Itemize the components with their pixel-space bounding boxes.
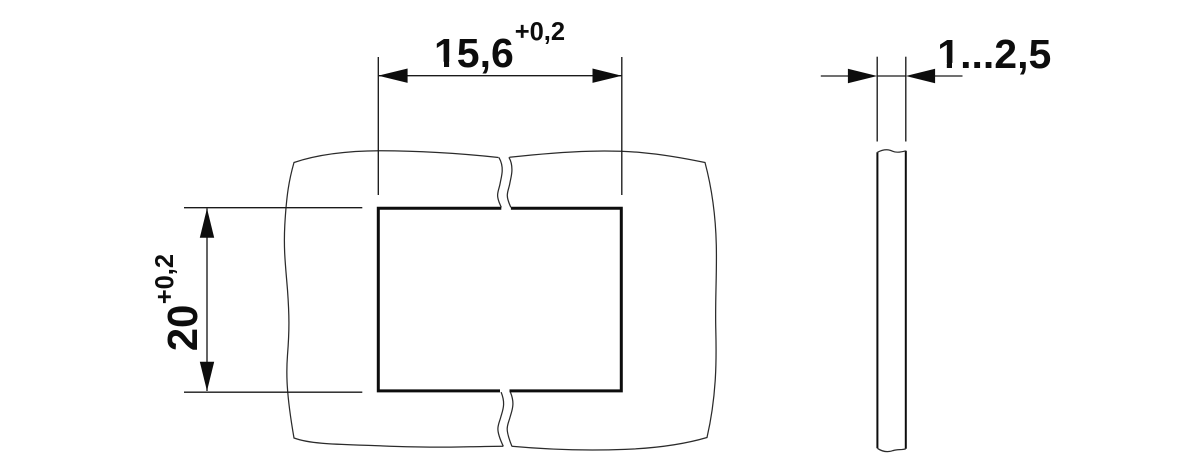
svg-text:+0,2: +0,2 [515,18,565,46]
svg-text:15,6: 15,6 [434,30,514,76]
svg-text:1...2,5: 1...2,5 [937,31,1051,77]
svg-text:20: 20 [159,305,206,352]
svg-text:+0,2: +0,2 [151,254,179,304]
